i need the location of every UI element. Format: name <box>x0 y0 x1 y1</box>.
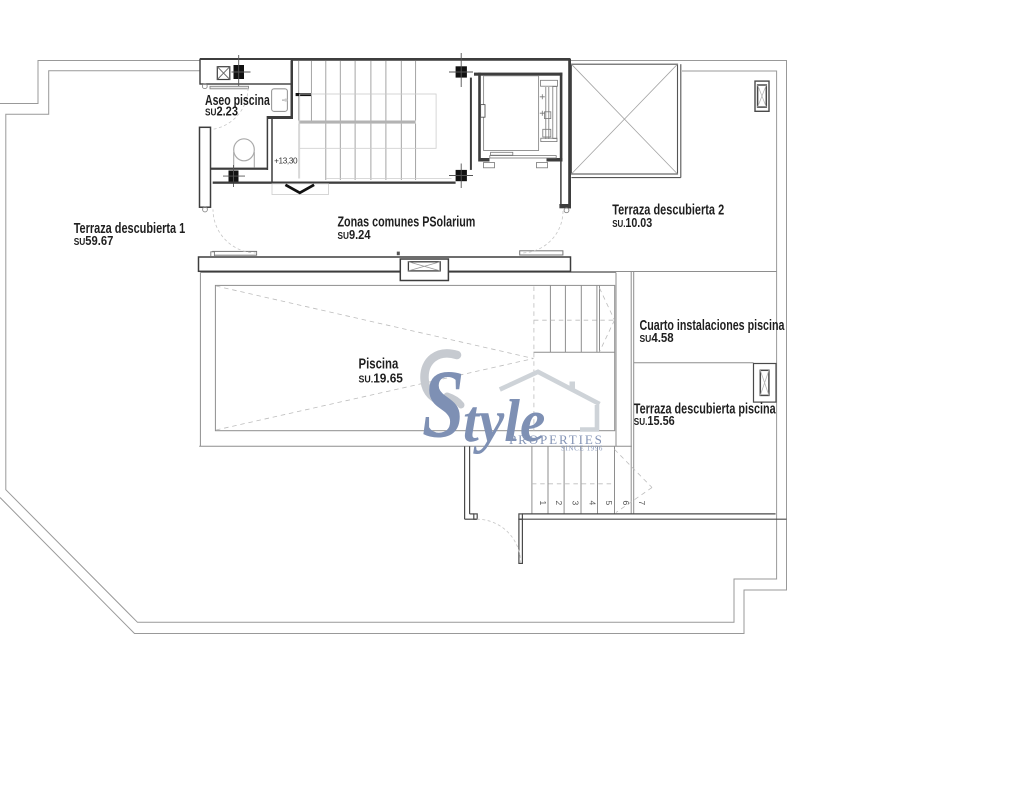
svg-text:SU4.58: SU4.58 <box>640 330 674 345</box>
svg-text:4: 4 <box>588 501 598 506</box>
svg-text:SU.15.56: SU.15.56 <box>634 413 675 428</box>
svg-text:5: 5 <box>604 501 614 506</box>
svg-text:SU59.67: SU59.67 <box>74 233 114 248</box>
svg-text:2: 2 <box>554 501 564 506</box>
svg-text:1: 1 <box>538 501 548 506</box>
svg-text:SU.19.65: SU.19.65 <box>359 371 403 386</box>
svg-text:Piscina: Piscina <box>359 355 400 372</box>
svg-text:3: 3 <box>571 501 581 506</box>
svg-text:SU.10.03: SU.10.03 <box>612 215 652 230</box>
svg-text:6: 6 <box>621 501 631 506</box>
svg-text:SU9.24: SU9.24 <box>338 227 371 242</box>
svg-text:7: 7 <box>637 501 647 506</box>
svg-text:SU2.23: SU2.23 <box>205 104 238 119</box>
svg-text:+13,30: +13,30 <box>274 156 298 165</box>
svg-text:SINCE 1996: SINCE 1996 <box>561 445 603 453</box>
svg-text:S: S <box>422 351 465 459</box>
